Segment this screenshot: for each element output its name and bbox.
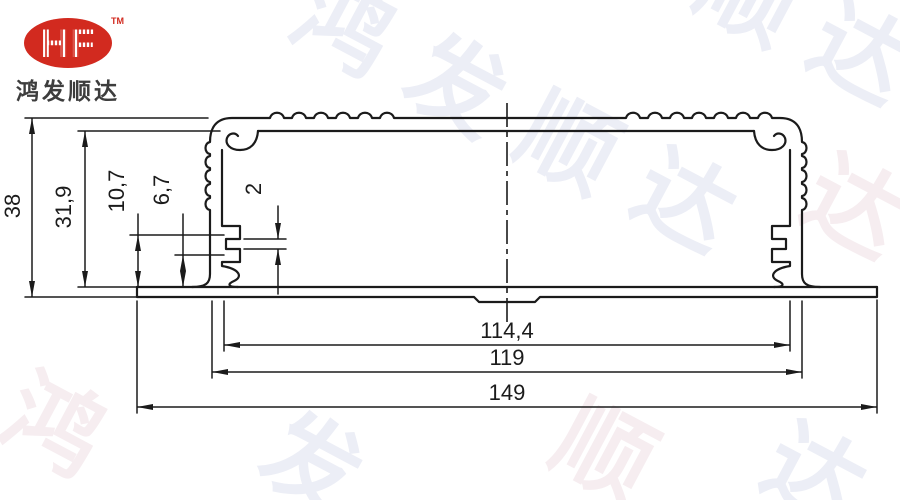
profile-outline — [137, 103, 877, 322]
dim-label-boss-top-height: 10,7 — [104, 170, 129, 213]
dim-label-body-height: 31,9 — [51, 186, 76, 229]
dim-label-slot-width: 2 — [241, 183, 266, 195]
drawing-page: 鸿 发 顺 达 顺 达 达 鸿 发 顺 达 HF TM 鸿发顺 — [0, 0, 900, 500]
profile-drawing: 38 31,9 10,7 6,7 2 1 — [0, 0, 900, 500]
dim-label-inner-width: 114,4 — [480, 318, 533, 343]
dim-label-overall-height: 38 — [0, 194, 25, 218]
dim-label-rib-top-height: 6,7 — [149, 175, 174, 206]
right-inner-wall — [772, 150, 790, 287]
left-screw-boss — [227, 131, 258, 150]
right-screw-boss — [754, 131, 785, 150]
left-inner-wall — [222, 150, 240, 287]
dim-slot-width: 2 — [241, 183, 286, 294]
dim-body-height: 31,9 — [51, 131, 220, 287]
shell-outer-contour — [192, 113, 820, 287]
dim-rib-top-height: 6,7 — [149, 175, 224, 287]
dim-label-overall-width: 149 — [489, 380, 526, 405]
dim-label-body-width: 119 — [489, 345, 524, 370]
